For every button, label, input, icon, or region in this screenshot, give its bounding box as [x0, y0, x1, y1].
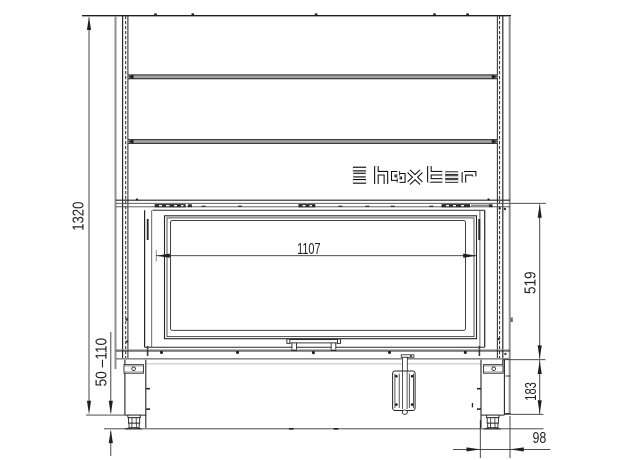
svg-text:1107: 1107: [297, 241, 320, 258]
svg-text:98: 98: [533, 430, 547, 447]
svg-text:183: 183: [523, 382, 540, 401]
svg-text:50 –110: 50 –110: [94, 338, 111, 387]
svg-text:1320: 1320: [71, 202, 88, 231]
svg-text:519: 519: [523, 271, 540, 294]
